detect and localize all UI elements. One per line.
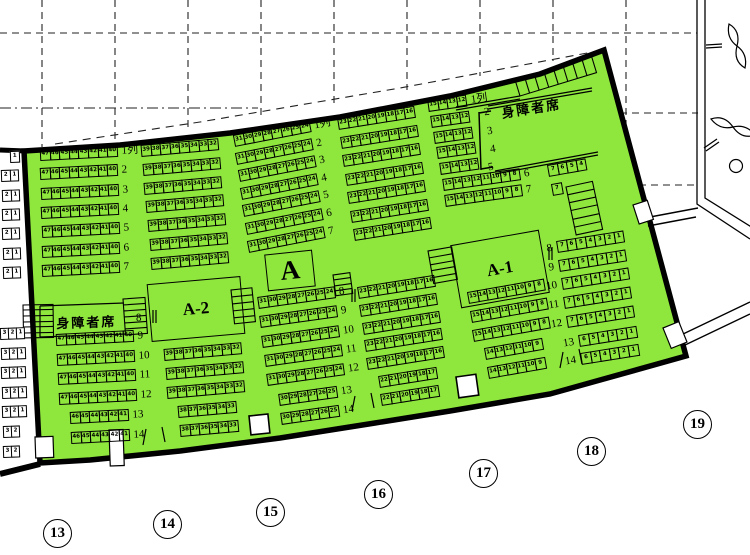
stand-outline (0, 50, 686, 474)
section-a-box: A (264, 250, 316, 292)
section-a2-label: A-2 (182, 298, 210, 320)
section-a2-box: A-2 (147, 276, 246, 342)
stairs-icon (23, 304, 54, 338)
disabled-seating-label-left: 身障者席 (56, 311, 117, 332)
stadium-seating-map: 47464544434241401列4746454443424140247464… (0, 0, 750, 555)
door-swing-icon (711, 106, 750, 148)
map-drawing (0, 0, 750, 555)
door-swing-icon (728, 24, 745, 68)
column-circle-icon (730, 160, 743, 173)
section-a-area (24, 50, 686, 463)
section-a-label: A (279, 254, 302, 287)
section-a1-label: A-1 (485, 257, 515, 281)
